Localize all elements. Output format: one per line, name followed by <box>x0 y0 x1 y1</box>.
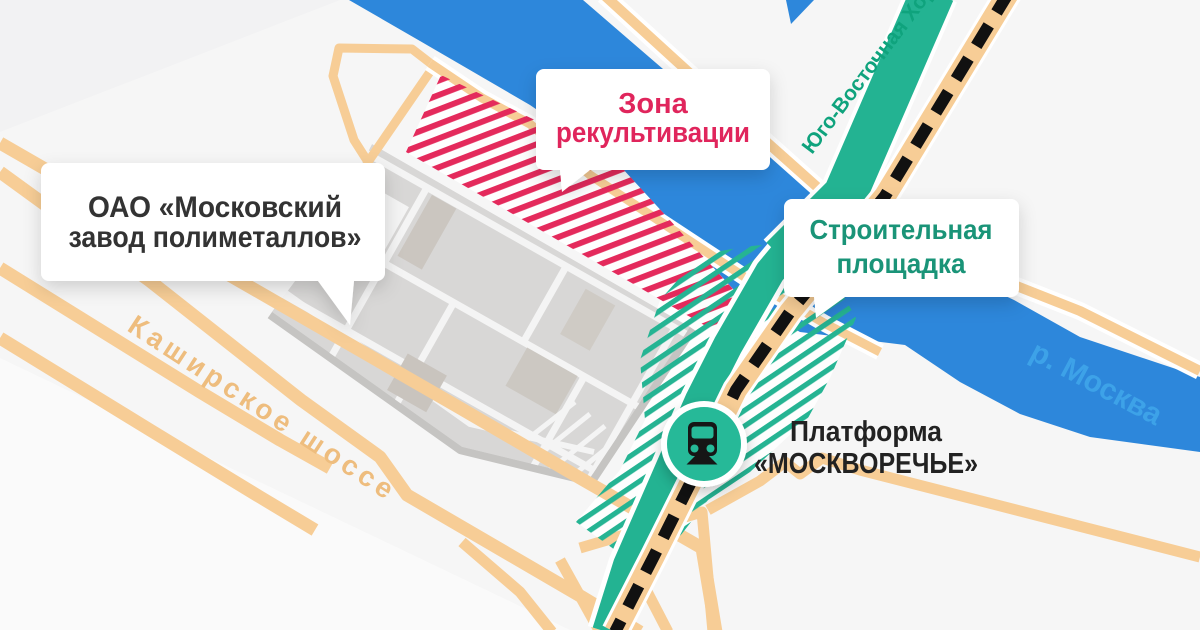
svg-text:площадка: площадка <box>837 248 966 279</box>
svg-text:ОАО «Московский: ОАО «Московский <box>88 191 342 224</box>
svg-text:«МОСКВОРЕЧЬЕ»: «МОСКВОРЕЧЬЕ» <box>754 448 978 480</box>
svg-text:Платформа: Платформа <box>790 416 943 448</box>
svg-text:рекультивации: рекультивации <box>556 117 750 149</box>
svg-text:Строительная: Строительная <box>810 214 993 245</box>
svg-text:завод полиметаллов»: завод полиметаллов» <box>69 221 362 254</box>
svg-text:Зона: Зона <box>618 88 688 120</box>
